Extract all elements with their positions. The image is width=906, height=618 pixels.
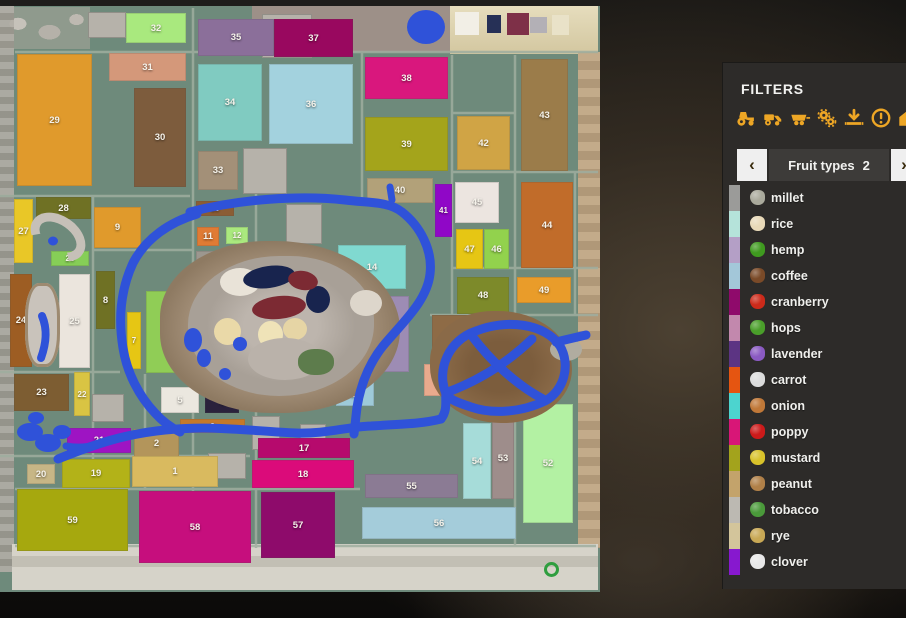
map-field-33: 33	[198, 151, 238, 190]
pond-island	[25, 283, 60, 367]
fruit-color-bar	[729, 497, 740, 523]
carrot-icon	[750, 372, 765, 387]
fruit-label: onion	[771, 399, 805, 413]
fruit-row-carrot[interactable]: carrot	[723, 367, 906, 393]
map-field-20: 20	[27, 464, 55, 484]
panel-title: FILTERS	[741, 81, 804, 97]
map-field-32: 32	[126, 13, 186, 43]
fruit-color-bar	[729, 523, 740, 549]
map-field-35: 35	[198, 19, 274, 56]
quarry-vegetation	[298, 349, 334, 375]
millet-icon	[750, 190, 765, 205]
dirt-area	[430, 311, 572, 423]
map-field-23: 23	[14, 374, 69, 411]
farm-buildings	[243, 148, 287, 194]
onion-icon	[750, 398, 765, 413]
fruit-row-coffee[interactable]: coffee	[723, 263, 906, 289]
map-field-47: 47	[456, 229, 483, 269]
map-field-17: 17	[258, 438, 350, 458]
map-field-41: 41	[435, 184, 452, 237]
fruit-row-mustard[interactable]: mustard	[723, 445, 906, 471]
fruit-color-bar	[729, 185, 740, 211]
fruit-row-lavender[interactable]: lavender	[723, 341, 906, 367]
fruit-label: poppy	[771, 425, 809, 439]
map-field-45: 45	[455, 182, 499, 223]
quarry-sand	[283, 318, 307, 340]
map-field-37: 37	[274, 19, 353, 57]
tractor-icon[interactable]	[734, 105, 758, 131]
building	[286, 204, 322, 244]
map-field-3: 3	[180, 419, 245, 433]
tobacco-icon	[750, 502, 765, 517]
map-field-59: 59	[17, 489, 128, 551]
harvester-icon[interactable]	[761, 105, 785, 131]
fruit-label: coffee	[771, 269, 808, 283]
fruit-color-bar	[729, 471, 740, 497]
map-field-25: 25	[59, 274, 90, 368]
fruit-type-prev-button[interactable]: ‹	[737, 149, 767, 181]
map-field-57: 57	[261, 492, 335, 558]
map-field-53: 53	[492, 418, 514, 499]
beach-hut	[507, 13, 529, 35]
quarry-pool	[306, 286, 330, 313]
fruit-type-next-button[interactable]: ›	[891, 149, 906, 181]
fruit-label: hemp	[771, 243, 804, 257]
map-field-40: 40	[367, 178, 433, 203]
fruit-row-hops[interactable]: hops	[723, 315, 906, 341]
map-field-48: 48	[457, 277, 509, 314]
selector-count: 2	[863, 158, 870, 173]
map-field-21: 21	[67, 428, 131, 453]
farm-map[interactable]: 2931303235373436333839424340414544474648…	[0, 0, 600, 592]
warning-icon[interactable]	[869, 105, 893, 131]
fruit-list: milletricehempcoffeecranberryhopslavende…	[723, 185, 906, 575]
fruit-label: cranberry	[771, 295, 829, 309]
fruit-type-selector-label: Fruit types 2	[769, 149, 889, 181]
fruit-row-rye[interactable]: rye	[723, 523, 906, 549]
fruit-label: millet	[771, 191, 804, 205]
lavender-icon	[750, 346, 765, 361]
poppy-icon	[750, 424, 765, 439]
map-field-9: 9	[94, 207, 141, 248]
fruit-color-bar	[729, 341, 740, 367]
fruit-label: rye	[771, 529, 790, 543]
map-field-19: 19	[62, 459, 130, 488]
map-field-29: 29	[17, 54, 92, 186]
map-field-56: 56	[362, 507, 516, 539]
map-field-49: 49	[517, 277, 571, 303]
dirt-patch	[550, 338, 582, 361]
fruit-color-bar	[729, 549, 740, 575]
fruit-color-bar	[729, 367, 740, 393]
beach-hut	[530, 17, 547, 33]
player-marker-icon	[544, 562, 559, 577]
fruit-row-rice[interactable]: rice	[723, 211, 906, 237]
quarry-sand	[214, 318, 241, 345]
fruit-row-hemp[interactable]: hemp	[723, 237, 906, 263]
house-icon[interactable]	[896, 105, 906, 131]
map-field-18: 18	[252, 460, 354, 488]
fruit-color-bar	[729, 211, 740, 237]
beach-hut	[487, 15, 501, 33]
fruit-label: hops	[771, 321, 801, 335]
mustard-icon	[750, 450, 765, 465]
fruit-color-bar	[729, 237, 740, 263]
trailer-icon[interactable]	[788, 105, 812, 131]
map-field-1: 1	[132, 456, 218, 487]
map-field-43: 43	[521, 59, 568, 171]
rice-icon	[750, 216, 765, 231]
fruit-row-cranberry[interactable]: cranberry	[723, 289, 906, 315]
fruit-color-bar	[729, 315, 740, 341]
building	[92, 394, 124, 422]
map-field-54: 54	[463, 423, 491, 499]
fruit-type-selector: ‹ Fruit types 2 ›	[723, 149, 906, 181]
gears-icon[interactable]	[815, 105, 839, 131]
fruit-label: clover	[771, 555, 808, 569]
hops-icon	[750, 320, 765, 335]
clover-icon	[750, 554, 765, 569]
rye-icon	[750, 528, 765, 543]
fruit-row-tobacco[interactable]: tobacco	[723, 497, 906, 523]
map-field-42: 42	[457, 116, 510, 170]
fruit-color-bar	[729, 419, 740, 445]
map-field-31: 31	[109, 53, 186, 81]
fruit-label: peanut	[771, 477, 812, 491]
map-field-36: 36	[269, 64, 353, 144]
building	[88, 12, 126, 38]
fruit-label: rice	[771, 217, 793, 231]
map-field-39: 39	[365, 117, 448, 171]
map-field-58: 58	[139, 491, 251, 563]
fruit-row-millet[interactable]: millet	[723, 185, 906, 211]
beach-hut	[552, 15, 569, 35]
map-field-2: 2	[134, 429, 179, 458]
filter-icons-row	[734, 105, 906, 131]
map-field-55: 55	[365, 474, 458, 498]
fruit-row-poppy[interactable]: poppy	[723, 419, 906, 445]
map-field-30: 30	[134, 88, 186, 187]
beach-hut	[455, 12, 479, 35]
fruit-color-bar	[729, 445, 740, 471]
map-field-10: 10	[196, 201, 234, 216]
fruit-label: lavender	[771, 347, 822, 361]
fruit-row-onion[interactable]: onion	[723, 393, 906, 419]
fruit-color-bar	[729, 263, 740, 289]
selector-text: Fruit types	[788, 158, 854, 173]
map-field-44: 44	[521, 182, 573, 268]
fruit-row-peanut[interactable]: peanut	[723, 471, 906, 497]
map-field-22: 22	[74, 372, 90, 416]
fruit-color-bar	[729, 393, 740, 419]
fruit-label: carrot	[771, 373, 806, 387]
map-field-11: 11	[197, 227, 219, 246]
map-field-52: 52	[523, 404, 573, 523]
map-field-7: 7	[127, 312, 141, 369]
cranberry-icon	[750, 294, 765, 309]
map-field-34: 34	[198, 64, 262, 141]
coffee-icon	[750, 268, 765, 283]
peanut-icon	[750, 476, 765, 491]
map-field-46: 46	[484, 229, 509, 269]
fruit-label: mustard	[771, 451, 820, 465]
right-beach	[578, 52, 600, 548]
quarry-patch	[350, 290, 382, 316]
filters-panel: FILTERS ‹ Fruit types 2 › milletricehemp…	[722, 62, 906, 589]
hemp-icon	[750, 242, 765, 257]
fruit-label: tobacco	[771, 503, 819, 517]
fruit-color-bar	[729, 289, 740, 315]
unload-arrow-icon[interactable]	[842, 105, 866, 131]
fruit-row-clover[interactable]: clover	[723, 549, 906, 575]
map-field-8: 8	[96, 271, 115, 329]
map-field-38: 38	[365, 57, 448, 99]
